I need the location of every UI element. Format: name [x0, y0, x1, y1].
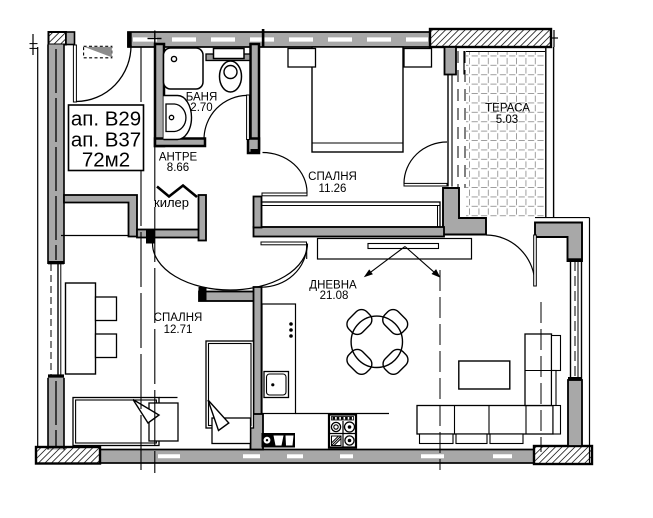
- svg-text:ап. B29: ап. B29: [71, 108, 141, 131]
- svg-text:12.71: 12.71: [164, 324, 193, 336]
- svg-text:СПАЛНЯ: СПАЛНЯ: [154, 312, 203, 324]
- svg-text:72м2: 72м2: [82, 149, 130, 172]
- svg-text:ТЕРАСА: ТЕРАСА: [485, 103, 530, 115]
- svg-text:СПАЛНЯ: СПАЛНЯ: [308, 171, 357, 183]
- svg-text:21.08: 21.08: [320, 290, 349, 302]
- svg-text:8.66: 8.66: [167, 162, 189, 174]
- svg-text:5.03: 5.03: [496, 114, 518, 126]
- svg-text:килер: килер: [154, 195, 189, 210]
- svg-text:11.26: 11.26: [319, 183, 347, 195]
- svg-text:2.70: 2.70: [190, 102, 212, 114]
